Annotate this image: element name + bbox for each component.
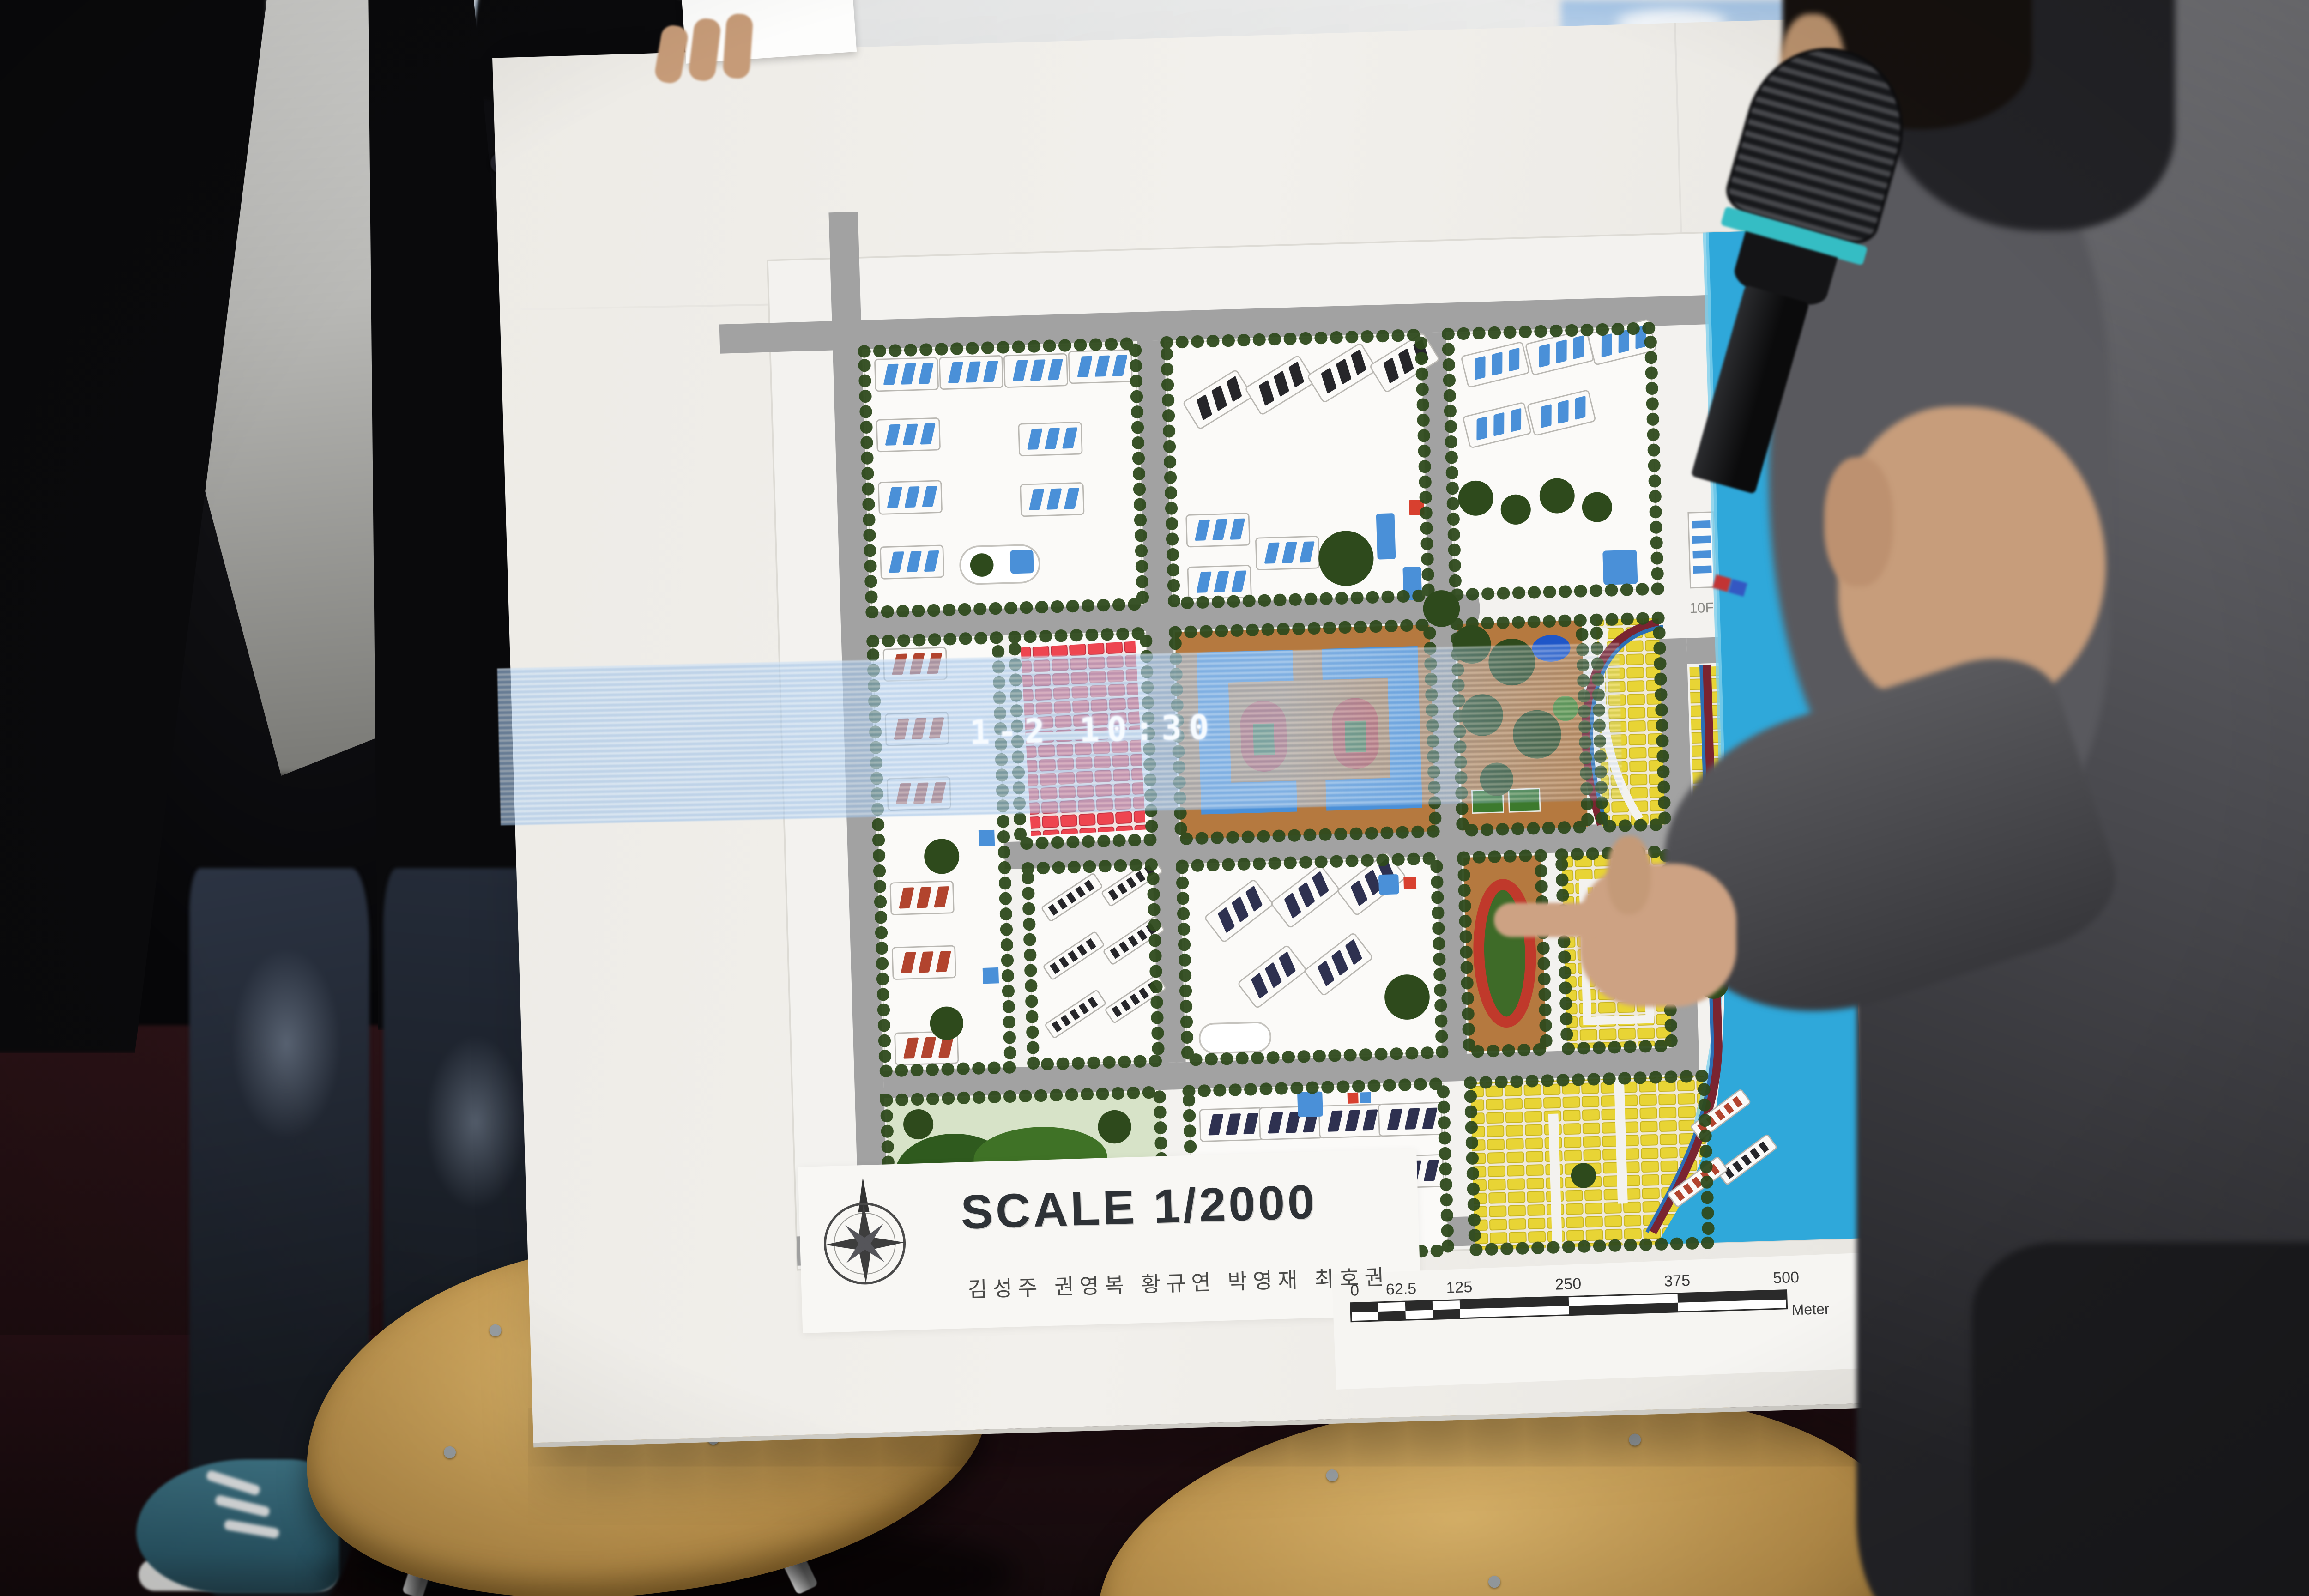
scale-tick: 62.5 [1385, 1280, 1416, 1299]
scale-tick: 125 [1446, 1278, 1473, 1297]
district-north-central [1167, 332, 1447, 608]
scale-tick: 500 [1773, 1269, 1800, 1287]
compass-rose-icon [812, 1168, 917, 1300]
presentation-board: 10F [492, 15, 1997, 1448]
jeans-knee-highlight [231, 947, 342, 1141]
stool-screw [443, 1445, 456, 1459]
row-housing-strips [1028, 858, 1168, 1064]
central-apartment-cluster [1182, 851, 1442, 1060]
stool-screw [1488, 1575, 1501, 1588]
stool-screw [489, 1324, 502, 1337]
scale-bar: 0 62.5 125 250 375 500 Meter [1346, 1265, 1856, 1368]
projected-timer-text: 1-2 10:30 [969, 700, 1571, 752]
scale-tick: 375 [1664, 1272, 1691, 1290]
district-northwest [864, 344, 1143, 612]
photo-scene: 10F [0, 0, 2309, 1596]
jeans-knee-highlight [425, 1034, 526, 1210]
finger [722, 13, 754, 79]
scale-tick: 250 [1555, 1275, 1582, 1294]
shoe-lace [214, 1494, 271, 1517]
stool-screw [1325, 1469, 1338, 1482]
building-floor-label: 10F [1689, 599, 1714, 617]
stool-screw [1628, 1433, 1641, 1446]
projector-overlay-band: 1-2 10:30 [497, 643, 1622, 825]
shoe-lace [206, 1469, 261, 1496]
district-northeast [1448, 319, 1663, 595]
scale-tick: 0 [1350, 1282, 1359, 1300]
scale-unit-label: Meter [1791, 1300, 1830, 1318]
athletics-track [1463, 855, 1547, 1052]
shoe-lace [224, 1519, 280, 1539]
